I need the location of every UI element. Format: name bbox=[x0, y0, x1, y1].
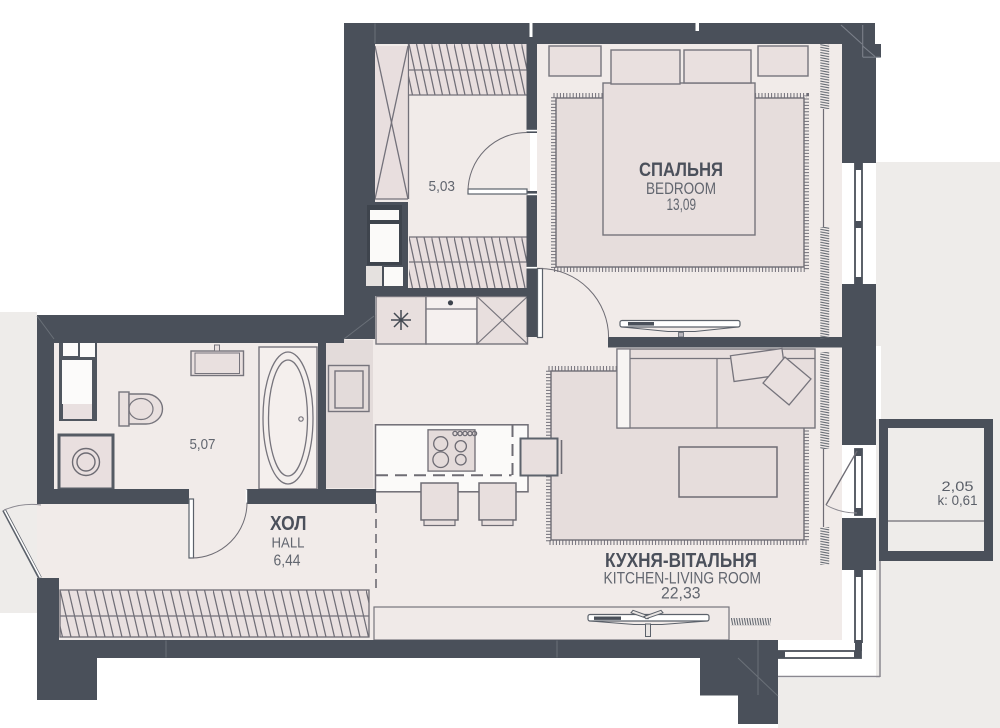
svg-text:22,33: 22,33 bbox=[661, 585, 701, 603]
svg-text:13,09: 13,09 bbox=[667, 196, 697, 214]
svg-text:6,44: 6,44 bbox=[274, 553, 301, 570]
svg-text:HALL: HALL bbox=[272, 535, 305, 552]
svg-text:5,03: 5,03 bbox=[429, 178, 456, 195]
svg-text:k: 0,61: k: 0,61 bbox=[938, 492, 978, 508]
svg-text:ХОЛ: ХОЛ bbox=[270, 513, 307, 535]
svg-text:СПАЛЬНЯ: СПАЛЬНЯ bbox=[639, 159, 723, 181]
svg-text:5,07: 5,07 bbox=[190, 437, 216, 453]
